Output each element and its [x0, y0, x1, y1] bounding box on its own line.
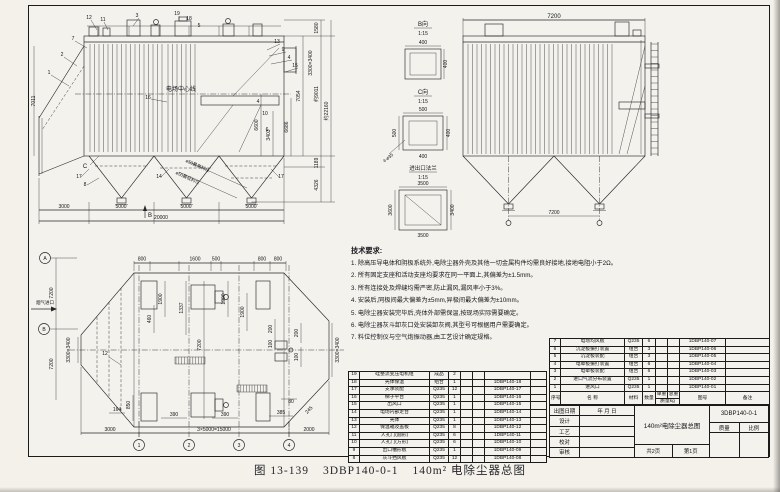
cell-qty: 3 — [643, 354, 656, 362]
cell-empty — [461, 432, 473, 440]
cell-empty — [726, 339, 770, 347]
part-ref-label: 17 — [76, 174, 82, 180]
cell-empty — [473, 447, 485, 455]
cell-empty — [461, 372, 473, 380]
cell-name: 电场均风板 — [561, 339, 625, 347]
cell-mat: Q235 — [625, 376, 643, 384]
sign-value — [580, 416, 634, 425]
cell-name: 人孔门(圆形) — [360, 432, 430, 440]
detail-title: B向 — [418, 20, 428, 28]
cell-name: 电晕极装配 — [561, 369, 625, 377]
cell-empty — [656, 339, 668, 347]
cell-empty — [461, 425, 473, 433]
header-name: 名 称 — [561, 392, 625, 405]
cell-no: 16 — [349, 394, 360, 402]
part-ref-label: 13 — [274, 39, 280, 45]
drawing-frame: 7011 电场中心线 3000 5000 5000 5000 20000 660… — [28, 5, 770, 457]
table-row: 7电场均风板Q23561DBP140-07 — [550, 339, 770, 347]
cell-no: 18 — [349, 379, 360, 387]
cell-qty: 6 — [643, 361, 656, 369]
cell-empty — [473, 440, 485, 448]
cell-no: 11 — [349, 432, 360, 440]
dim-label: 2000 — [303, 427, 314, 433]
part-ref-label: 7 — [72, 36, 75, 42]
header-no: 序号 — [550, 392, 561, 405]
dim-label: 800 — [138, 257, 147, 263]
cell-empty — [473, 432, 485, 440]
dim-label: 7200 — [49, 287, 55, 298]
cell-empty — [461, 447, 473, 455]
cell-qty: 2 — [449, 372, 461, 380]
header-note: 备注 — [726, 392, 770, 405]
cell-empty — [668, 339, 680, 347]
dim-label: 3500 — [417, 233, 428, 239]
tech-requirement-item: 4. 安装后,同极间最大偏差为±5mm,异极间最大偏差为±10mm。 — [351, 295, 780, 307]
dim-label: 3300×3400 — [308, 50, 314, 75]
cell-mat: Q235 — [430, 425, 449, 433]
cell-empty — [668, 361, 680, 369]
dim-label: 1900 — [221, 293, 227, 304]
cell-empty — [473, 417, 485, 425]
dim-label: 164 — [113, 407, 122, 413]
scale-value — [740, 433, 769, 457]
cell-dwg: 1DBP140-03 — [680, 369, 726, 377]
axis-bubble-label: B — [42, 327, 46, 333]
cell-qty: 6 — [643, 339, 656, 347]
cell-empty — [531, 440, 547, 448]
cell-qty: 1 — [449, 379, 461, 387]
cell-name: 支承装配 — [360, 387, 430, 395]
scale-label: 比例 — [740, 423, 769, 432]
sign-label: 校对 — [550, 437, 580, 446]
cell-name: 沉淀极装配 — [561, 354, 625, 362]
dim-label: 850 — [126, 401, 132, 410]
cell-empty — [461, 387, 473, 395]
technical-requirements: 技术要求: 1. 除高压导电体和阴极系统外,电除尘器外壳及其他一切金属构件均需良… — [351, 246, 780, 345]
cell-qty: 1 — [643, 384, 656, 392]
tech-requirement-item: 1. 除高压导电体和阴极系统外,电除尘器外壳及其他一切金属构件均需良好接地,接地… — [351, 258, 780, 270]
cell-qty: 1 — [449, 402, 461, 410]
cell-empty — [726, 354, 770, 362]
cell-dwg: 1DBP140-17 — [485, 387, 531, 395]
dim-label: 7200 — [547, 14, 561, 20]
cell-name: 沉淀极振打装置 — [561, 346, 625, 354]
mass-scale-values — [710, 432, 768, 457]
cell-empty — [668, 384, 680, 392]
cell-empty — [461, 440, 473, 448]
table-row: 14电场内部走台Q23511DBP140-14 — [349, 409, 547, 417]
dim-label: 5000 — [115, 204, 126, 210]
cell-empty — [531, 417, 547, 425]
cell-empty — [656, 354, 668, 362]
table-row: 16梯子平台Q23511DBP140-16 — [349, 394, 547, 402]
part-ref-label: 1 — [48, 70, 51, 76]
dim-label: 800 — [258, 257, 267, 263]
sign-value — [580, 448, 634, 457]
cell-no: 5 — [550, 354, 561, 362]
title-block-signatures: 出图日期 年 月 日 设计 工艺 校对 审核 — [550, 406, 634, 457]
drawing-number: 3DBP140-0-1 — [710, 406, 768, 422]
cell-dwg: 1DBP140-05 — [680, 354, 726, 362]
cell-dwg: 1DBP140-18 — [485, 379, 531, 387]
part-ref-label: 19 — [174, 11, 180, 17]
cell-mat: 组合 — [625, 369, 643, 377]
axis-bubble-label: 4 — [288, 443, 291, 449]
cell-empty — [531, 447, 547, 455]
plan-view: 烟气进口 A B 7200 7200 3300×3400 3300×3400 8… — [29, 245, 381, 458]
header-total-weight: 总重 — [668, 392, 679, 397]
axis-bubble-label: 3 — [238, 443, 241, 449]
part-ref-label: 8 — [84, 182, 87, 188]
header-weight-unit: 质量kg — [656, 399, 679, 404]
part-ref-label: 5 — [198, 23, 201, 29]
side-elevation-geometry — [34, 16, 335, 224]
view-arrow-label: B — [148, 213, 152, 219]
dim-label: 1900 — [158, 293, 164, 304]
part-ref-label: 6 — [266, 127, 269, 133]
cell-mat: Q235 — [430, 417, 449, 425]
cell-mat: 组合 — [625, 354, 643, 362]
dim-label: 400 — [443, 60, 449, 69]
cell-mat: Q235 — [430, 387, 449, 395]
table-row: 12保温箱及盖板Q23581DBP140-12 — [349, 425, 547, 433]
dim-label: 400 — [419, 154, 428, 160]
cell-no: 4 — [550, 361, 561, 369]
dim-label: 1189 — [314, 157, 320, 168]
dim-label: 1580 — [314, 22, 320, 33]
axis-bubble-label: 2 — [188, 443, 191, 449]
mass-value — [710, 433, 740, 457]
drawing-title: 140m²电除尘器总图 — [635, 406, 709, 444]
dim-label: 3000 — [58, 204, 69, 210]
cell-dwg: 1DBP140-10 — [485, 440, 531, 448]
cell-empty — [473, 372, 485, 380]
dim-label: 100 — [294, 353, 300, 362]
cell-mat: Q235 — [430, 447, 449, 455]
part-ref-label: 18 — [186, 16, 192, 22]
cell-empty — [726, 376, 770, 384]
dim-label: 200 — [268, 325, 274, 334]
dim-label: 1900 — [240, 306, 246, 317]
cell-mat: Q235 — [430, 432, 449, 440]
table-row: 18壳体保温组合11DBP140-18 — [349, 379, 547, 387]
parts-table-right: 7电场均风板Q23561DBP140-076沉淀极振打装置组合31DBP140-… — [549, 338, 770, 414]
dim-label: 3300×3400 — [66, 337, 72, 362]
cell-dwg: 1DBP140-14 — [485, 409, 531, 417]
cell-name: 出口槽形板 — [360, 447, 430, 455]
dim-label: 7054 — [296, 90, 302, 101]
figure-code: 3DBP140-0-1 — [323, 465, 399, 477]
figure-title: 140m² 电除尘器总图 — [412, 465, 526, 477]
dim-label: 500 — [392, 129, 398, 138]
cell-no: 12 — [349, 425, 360, 433]
part-ref-label: 12 — [102, 351, 108, 357]
dim-label: 7011 — [31, 95, 37, 106]
parts-table-header: 序号 名 称 材料 数量 单重总重 质量kg 图号 备注 — [550, 392, 770, 405]
dim-label: 3500 — [417, 181, 428, 187]
dim-label: 约9011 — [313, 86, 320, 102]
cell-name: 出风口 — [360, 402, 430, 410]
table-row: 10人孔门(方形)Q23561DBP140-10 — [349, 440, 547, 448]
cell-empty — [531, 409, 547, 417]
cell-empty — [531, 379, 547, 387]
cell-empty — [531, 402, 547, 410]
sign-value — [580, 437, 634, 446]
cell-no: 2 — [550, 376, 561, 384]
cell-empty — [726, 369, 770, 377]
drawing-sheet: 7011 电场中心线 3000 5000 5000 5000 20000 660… — [0, 0, 780, 492]
cell-qty: 1 — [449, 409, 461, 417]
dim-label: 400 — [419, 40, 428, 46]
cell-qty: 1 — [449, 447, 461, 455]
cell-empty — [461, 417, 473, 425]
material-level-label: ø50最低料位 — [174, 169, 201, 186]
detail-scale: 1:15 — [418, 99, 428, 105]
part-ref-label: 12 — [86, 15, 92, 21]
cell-no: 14 — [349, 409, 360, 417]
part-ref-label: 2 — [61, 52, 64, 58]
table-row: 19硅整流变压电机组成品2 — [349, 372, 547, 380]
parts-table-left: 19硅整流变压电机组成品218壳体保温组合11DBP140-1817支承装配Q2… — [348, 371, 547, 463]
cell-empty — [531, 425, 547, 433]
cell-no: 19 — [349, 372, 360, 380]
header-weight: 单重总重 质量kg — [656, 392, 680, 405]
dim-label: 3000 — [104, 427, 115, 433]
dim-label: 390 — [170, 412, 179, 418]
cell-no: 10 — [349, 440, 360, 448]
cell-dwg: 1DBP140-12 — [485, 425, 531, 433]
cell-mat: Q235 — [625, 384, 643, 392]
cell-name: 进风口 — [561, 384, 625, 392]
cell-empty — [668, 376, 680, 384]
cell-qty: 12 — [449, 387, 461, 395]
inlet-label: 烟气进口 — [36, 299, 54, 306]
dim-label: 7200 — [548, 210, 559, 216]
cell-empty — [668, 346, 680, 354]
part-ref-label: 3 — [136, 13, 139, 19]
part-ref-label: 16 — [145, 95, 151, 101]
plan-view-geometry — [31, 253, 344, 451]
part-ref-label: 14 — [156, 174, 162, 180]
technical-requirements-list: 1. 除高压导电体和阴极系统外,电除尘器外壳及其他一切金属构件均需良好接地,接地… — [351, 258, 780, 345]
axis-bubble-label: 1 — [138, 443, 141, 449]
dim-label: 20000 — [154, 215, 168, 221]
dim-label: 3400 — [450, 204, 456, 215]
cell-name: 进口气流分布装置 — [561, 376, 625, 384]
tech-requirement-item: 6. 电除尘器灰斗卸灰口处安装卸灰阀,其型号可根据用户需要确定。 — [351, 320, 780, 332]
cell-empty — [473, 394, 485, 402]
dim-label: 390 — [221, 412, 230, 418]
technical-requirements-title: 技术要求: — [351, 246, 780, 256]
cell-empty — [668, 369, 680, 377]
cell-dwg: 1DBP140-13 — [485, 417, 531, 425]
table-row: 13壳体Q23511DBP140-13 — [349, 417, 547, 425]
end-elevation-view: B向 1:15 400 400 C向 1:15 500 500 400 400 … — [379, 6, 771, 242]
cell-mat: Q235 — [430, 440, 449, 448]
cell-mat: Q235 — [430, 402, 449, 410]
cell-empty — [531, 432, 547, 440]
cell-empty — [461, 394, 473, 402]
table-row: 3电晕极装配组合61DBP140-03 — [550, 369, 770, 377]
cell-empty — [473, 409, 485, 417]
cell-empty — [461, 402, 473, 410]
cell-empty — [668, 354, 680, 362]
cell-name: 梯子平台 — [360, 394, 430, 402]
part-ref-label: 9 — [282, 47, 285, 53]
cell-no: 7 — [550, 339, 561, 347]
cell-mat: Q235 — [625, 339, 643, 347]
table-row: 11人孔门(圆形)Q23561DBP140-11 — [349, 432, 547, 440]
dim-label: 6686 — [284, 121, 290, 132]
dim-label: 7200 — [197, 339, 203, 350]
sign-label: 设计 — [550, 416, 580, 425]
cell-dwg: 1DBP140-16 — [485, 394, 531, 402]
table-row: 15出风口Q23511DBP140-15 — [349, 402, 547, 410]
dim-label: 500 — [419, 107, 428, 113]
title-block-row: 工艺 — [550, 427, 634, 437]
cell-no: 13 — [349, 417, 360, 425]
cell-qty: 6 — [449, 432, 461, 440]
centerline-label: 电场中心线 — [166, 85, 196, 93]
dim-label: 6600 — [254, 119, 260, 130]
page-info: 共2页 第1页 — [635, 444, 709, 457]
tech-requirement-item: 3. 所有连接处及焊缝均需严密,防止漏风,漏风率小于3%。 — [351, 283, 780, 295]
part-ref-label: 15 — [292, 63, 298, 69]
side-elevation-view: 7011 电场中心线 3000 5000 5000 5000 20000 660… — [29, 6, 347, 244]
cell-dwg: 1DBP140-04 — [680, 361, 726, 369]
dim-label: 80 — [288, 399, 294, 405]
header-qty: 数量 — [643, 392, 656, 405]
figure-number: 图 13-139 — [254, 465, 309, 477]
hole-callout: 4-ø35 — [382, 152, 395, 163]
cell-dwg: 1DBP140-01 — [680, 384, 726, 392]
cell-dwg: 1DBP140-09 — [485, 447, 531, 455]
cell-empty — [531, 372, 547, 380]
tech-requirement-item: 2. 所有固定支座和活动支座均要求在同一平面上,其偏差为±1.5mm。 — [351, 270, 780, 282]
detail-scale: 1:15 — [418, 31, 428, 37]
cell-empty — [473, 402, 485, 410]
view-arrow-label: C — [83, 164, 88, 170]
title-block-row: 设计 — [550, 416, 634, 426]
figure-caption: 图 13-1393DBP140-0-1140m² 电除尘器总图 — [0, 462, 780, 478]
dim-label: 5000 — [245, 204, 256, 210]
cell-no: 1 — [550, 384, 561, 392]
cell-name: 保温箱及盖板 — [360, 425, 430, 433]
detail-title: C向 — [418, 88, 428, 96]
dim-label: 7200 — [49, 358, 55, 369]
dim-label: 1600 — [189, 257, 200, 263]
tech-requirement-item: 5. 电除尘器安装完毕后,壳体外部需保温,按现场实际需要确定。 — [351, 308, 780, 320]
title-block-row: 审核 — [550, 448, 634, 457]
dim-label: 200 — [294, 329, 300, 338]
cell-mat: 成品 — [430, 372, 449, 380]
cell-no: 15 — [349, 402, 360, 410]
cell-empty — [726, 384, 770, 392]
cell-qty: 6 — [643, 369, 656, 377]
cell-mat: Q235 — [430, 394, 449, 402]
date-label: 出图日期 — [550, 406, 580, 415]
title-block: 出图日期 年 月 日 设计 工艺 校对 审核 140m²电除尘器总图 共2页 第… — [549, 405, 769, 458]
dim-label: 约22160 — [323, 101, 330, 120]
cell-dwg: 1DBP140-06 — [680, 346, 726, 354]
table-row: 5沉淀极装配组合31DBP140-05 — [550, 354, 770, 362]
page-number: 第1页 — [673, 445, 710, 457]
header-dwg-no: 图号 — [680, 392, 726, 405]
cell-name: 壳体保温 — [360, 379, 430, 387]
cell-dwg: 1DBP140-07 — [680, 339, 726, 347]
cell-qty: 1 — [449, 394, 461, 402]
dim-label: 4326 — [314, 179, 320, 190]
dim-label: 800 — [274, 257, 283, 263]
cell-empty — [656, 384, 668, 392]
cell-qty: 8 — [449, 425, 461, 433]
cell-empty — [531, 387, 547, 395]
cell-empty — [461, 379, 473, 387]
cell-qty: 3 — [643, 346, 656, 354]
cell-empty — [473, 425, 485, 433]
axis-bubble-label: A — [43, 256, 47, 262]
cell-empty — [461, 409, 473, 417]
cell-dwg: 1DBP140-02 — [680, 376, 726, 384]
mass-label: 质量 — [710, 423, 740, 432]
cell-mat: 组合 — [430, 379, 449, 387]
cell-empty — [473, 379, 485, 387]
cell-qty: 6 — [449, 440, 461, 448]
title-block-row: 校对 — [550, 437, 634, 447]
cell-mat: 组合 — [625, 361, 643, 369]
dim-label: 385 — [277, 410, 286, 416]
dim-label: 3300×3400 — [335, 337, 341, 362]
cell-empty — [473, 387, 485, 395]
table-row: 4电晕极振打装置组合61DBP140-04 — [550, 361, 770, 369]
cell-name: 电场内部走台 — [360, 409, 430, 417]
cell-empty — [726, 346, 770, 354]
part-ref-label: 10 — [262, 111, 268, 117]
end-elevation-geometry — [463, 18, 659, 226]
cell-name: 硅整流变压电机组 — [360, 372, 430, 380]
header-unit-weight: 单重 — [656, 392, 668, 397]
dim-label: 460 — [147, 315, 153, 324]
table-row: 9出口槽形板Q23511DBP140-09 — [349, 447, 547, 455]
table-row: 17支承装配Q235121DBP140-17 — [349, 387, 547, 395]
cell-empty — [656, 361, 668, 369]
cell-dwg: 1DBP140-11 — [485, 432, 531, 440]
cell-no: 9 — [349, 447, 360, 455]
cell-dwg: 1DBP140-15 — [485, 402, 531, 410]
dim-label: 3×5000=15000 — [197, 427, 231, 433]
sign-label: 工艺 — [550, 427, 580, 436]
cell-empty — [656, 346, 668, 354]
dim-label: 1337 — [179, 302, 185, 313]
title-block-row: 出图日期 年 月 日 — [550, 406, 634, 416]
part-ref-label: 17 — [278, 174, 284, 180]
part-ref-label: 11 — [100, 17, 105, 23]
cell-mat: Q235 — [430, 409, 449, 417]
dim-label: 3600 — [388, 204, 394, 215]
cell-empty — [726, 361, 770, 369]
table-row: 2进口气流分布装置Q23511DBP140-02 — [550, 376, 770, 384]
table-row: 1进风口Q23511DBP140-01 — [550, 384, 770, 392]
sign-label: 审核 — [550, 448, 580, 457]
cell-name: 电晕极振打装置 — [561, 361, 625, 369]
cell-no: 6 — [550, 346, 561, 354]
cell-no: 17 — [349, 387, 360, 395]
dim-label: 100 — [268, 340, 274, 349]
date-value: 年 月 日 — [580, 406, 634, 415]
dim-label: 400 — [446, 129, 452, 138]
part-ref-label: 4 — [288, 55, 291, 61]
cell-empty — [531, 394, 547, 402]
